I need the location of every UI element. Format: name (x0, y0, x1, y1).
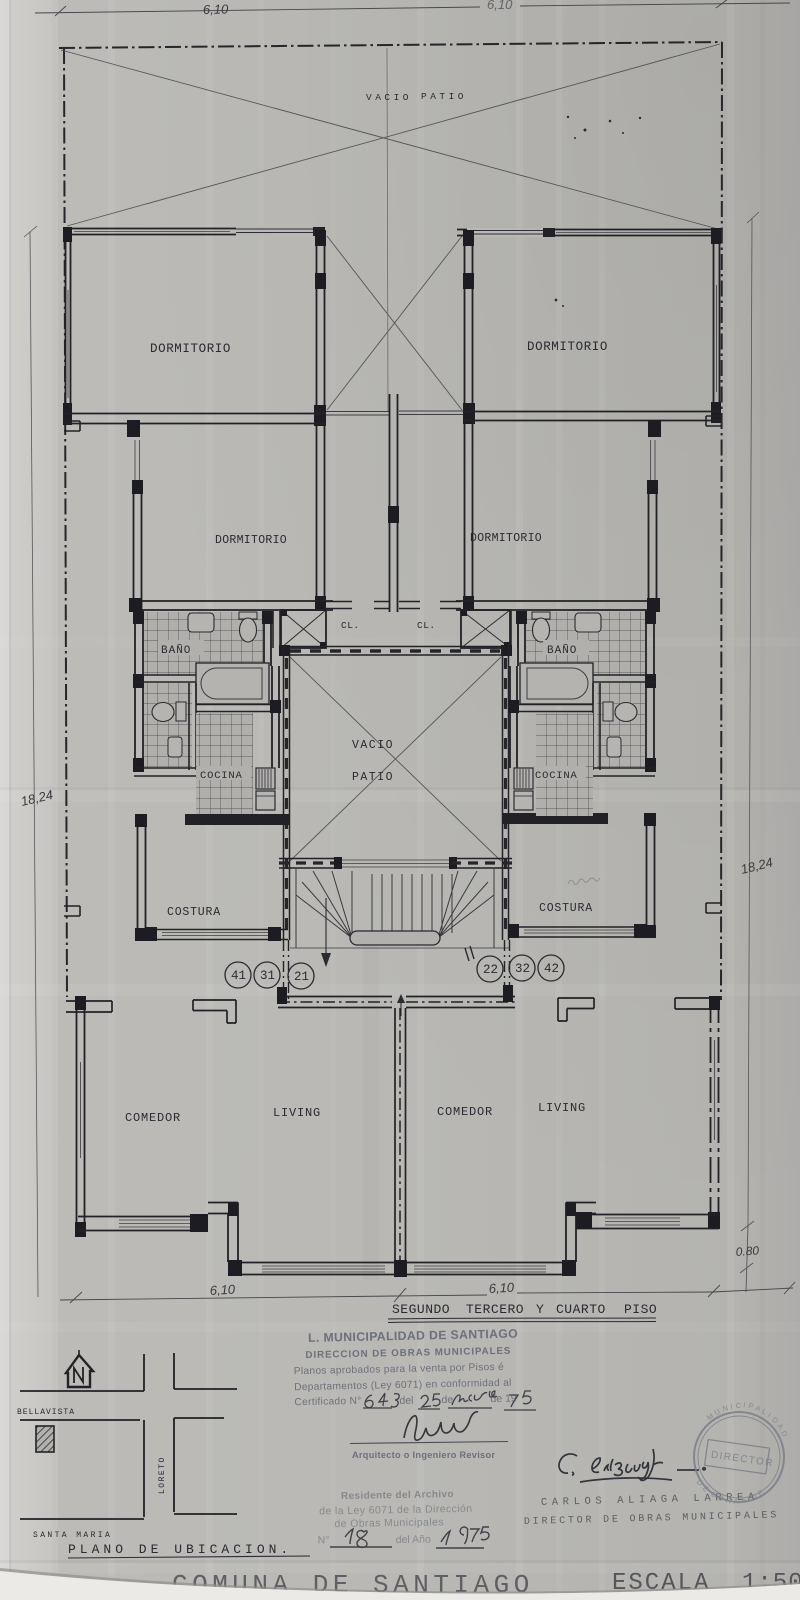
svg-text:COSTURA: COSTURA (539, 902, 593, 915)
svg-text:DORMITORIO: DORMITORIO (150, 342, 231, 356)
svg-text:Arquitecto o Ingeniero Revisor: Arquitecto o Ingeniero Revisor (352, 1450, 495, 1460)
svg-text:21: 21 (294, 970, 309, 984)
svg-text:32: 32 (515, 962, 530, 976)
svg-text:de Obras Municipales: de Obras Municipales (334, 1516, 444, 1530)
svg-text:COCINA: COCINA (200, 770, 243, 782)
svg-text:CL.: CL. (341, 620, 360, 631)
svg-text:41: 41 (231, 969, 246, 983)
svg-text:42: 42 (544, 962, 559, 976)
svg-text:LIVING: LIVING (538, 1101, 586, 1115)
svg-text:LORETO: LORETO (158, 1456, 167, 1494)
svg-text:COMEDOR: COMEDOR (437, 1105, 493, 1119)
svg-text:S: S (741, 1495, 748, 1505)
svg-text:6,10: 6,10 (203, 2, 229, 17)
svg-text:VACIO: VACIO (352, 739, 394, 752)
svg-text:A: A (733, 1497, 739, 1506)
svg-text:PLANO DE UBICACION.: PLANO DE UBICACION. (68, 1542, 292, 1557)
svg-text:22: 22 (483, 963, 498, 977)
svg-text:COSTURA: COSTURA (167, 906, 221, 919)
svg-text:6,10: 6,10 (487, 0, 513, 12)
svg-text:C: C (736, 1401, 742, 1410)
svg-text:Residente del Archivo: Residente del Archivo (341, 1489, 454, 1502)
svg-text:0.80: 0.80 (735, 1243, 760, 1259)
svg-text:del Año: del Año (396, 1533, 431, 1546)
svg-text:N°: N° (318, 1534, 330, 1546)
svg-text:PATIO: PATIO (352, 771, 394, 784)
svg-text:DORMITORIO: DORMITORIO (470, 532, 542, 545)
svg-text:BELLAVISTA: BELLAVISTA (17, 1408, 75, 1417)
svg-text:BAÑO: BAÑO (547, 644, 577, 657)
svg-text:del: del (399, 1395, 413, 1407)
svg-text:CL.: CL. (417, 620, 436, 631)
svg-text:PATIO: PATIO (421, 91, 467, 102)
svg-text:DORMITORIO: DORMITORIO (215, 534, 287, 547)
svg-text:COMEDOR: COMEDOR (125, 1111, 181, 1125)
svg-text:6,10: 6,10 (488, 1280, 515, 1296)
svg-text:BAÑO: BAÑO (161, 644, 191, 657)
svg-text:31: 31 (260, 969, 275, 983)
svg-text:Certificado N°: Certificado N° (294, 1396, 361, 1408)
svg-text:COCINA: COCINA (535, 770, 578, 782)
svg-text:VACIO: VACIO (366, 92, 412, 103)
svg-text:SANTA MARIA: SANTA MARIA (33, 1531, 112, 1540)
svg-text:6,10: 6,10 (209, 1282, 236, 1298)
svg-text:LIVING: LIVING (273, 1106, 321, 1120)
svg-text:DORMITORIO: DORMITORIO (527, 340, 608, 354)
